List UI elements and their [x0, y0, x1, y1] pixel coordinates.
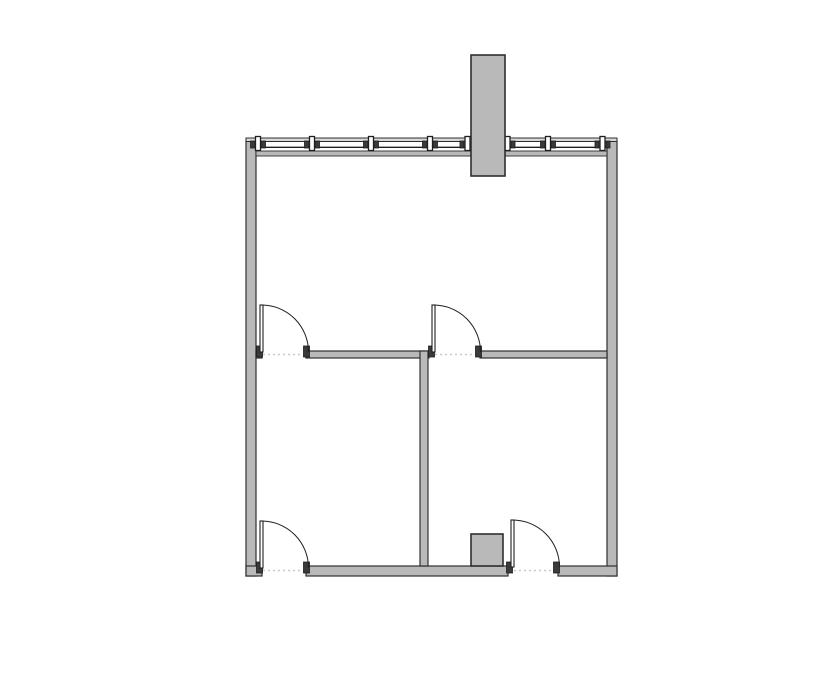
window-mullion-2-flange-left: [364, 141, 368, 148]
door-lower-right-jamb-1: [554, 562, 560, 573]
window-mullion-0: [256, 137, 261, 151]
window-wall-inner-band: [256, 151, 607, 156]
window-mullion-7: [600, 137, 605, 151]
door-upper-right-swing-arc: [434, 305, 481, 352]
window-mullion-1: [310, 137, 315, 151]
floor-plan-page: [0, 0, 835, 678]
window-mullion-7-flange-left: [595, 141, 599, 148]
window-mullion-3-flange-left: [423, 141, 427, 148]
window-mullion-2-flange-right: [375, 141, 379, 148]
door-lower-right-swing-arc: [513, 520, 560, 567]
interior-vertical-wall: [420, 351, 428, 566]
window-mullion-3-flange-right: [434, 141, 438, 148]
window-mullion-0-flange-left: [251, 141, 255, 148]
exterior-left-wall: [246, 140, 256, 576]
window-mullion-6: [546, 137, 551, 151]
window-mullion-1-flange-left: [305, 141, 309, 148]
door-upper-left-swing-arc: [262, 305, 309, 352]
window-mullion-4-flange-left: [460, 141, 464, 148]
middle-wall-right: [480, 351, 607, 358]
exterior-right-wall: [607, 140, 617, 576]
roof-shaft-column: [471, 55, 505, 176]
door-upper-right-leaf: [432, 305, 435, 352]
bottom-wall-right: [558, 566, 617, 576]
bottom-wall-center: [306, 566, 508, 576]
window-mullion-7-flange-right: [606, 141, 610, 148]
door-upper-left-leaf: [260, 305, 263, 352]
middle-wall-center: [306, 351, 429, 358]
floor-plan-svg: [0, 0, 835, 678]
window-mullion-4: [465, 137, 470, 151]
interior-column-box: [471, 534, 503, 566]
door-lower-right-leaf: [511, 520, 514, 567]
door-lower-left-leaf: [260, 521, 263, 568]
window-mullion-6-flange-left: [541, 141, 545, 148]
door-lower-left-swing-arc: [262, 521, 309, 568]
window-mullion-5-flange-right: [511, 141, 515, 148]
window-mullion-2: [369, 137, 374, 151]
window-mullion-1-flange-right: [316, 141, 320, 148]
window-mullion-6-flange-right: [552, 141, 556, 148]
window-mullion-0-flange-right: [262, 141, 266, 148]
window-mullion-3: [428, 137, 433, 151]
